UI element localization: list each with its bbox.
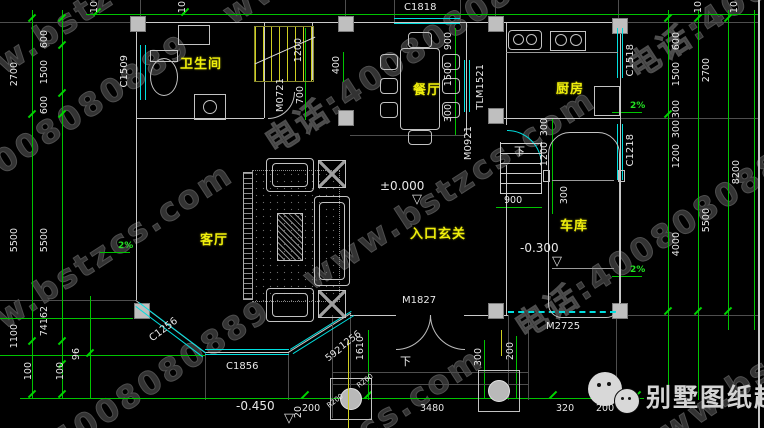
brand: 别墅图纸超市 (0, 0, 764, 428)
brand-name: 别墅图纸超市 (646, 378, 764, 414)
floorplan-canvas: www.bstzcs.com电话:4008080889www.bstzcs.co… (0, 0, 764, 428)
wechat-icon-small (614, 388, 640, 414)
